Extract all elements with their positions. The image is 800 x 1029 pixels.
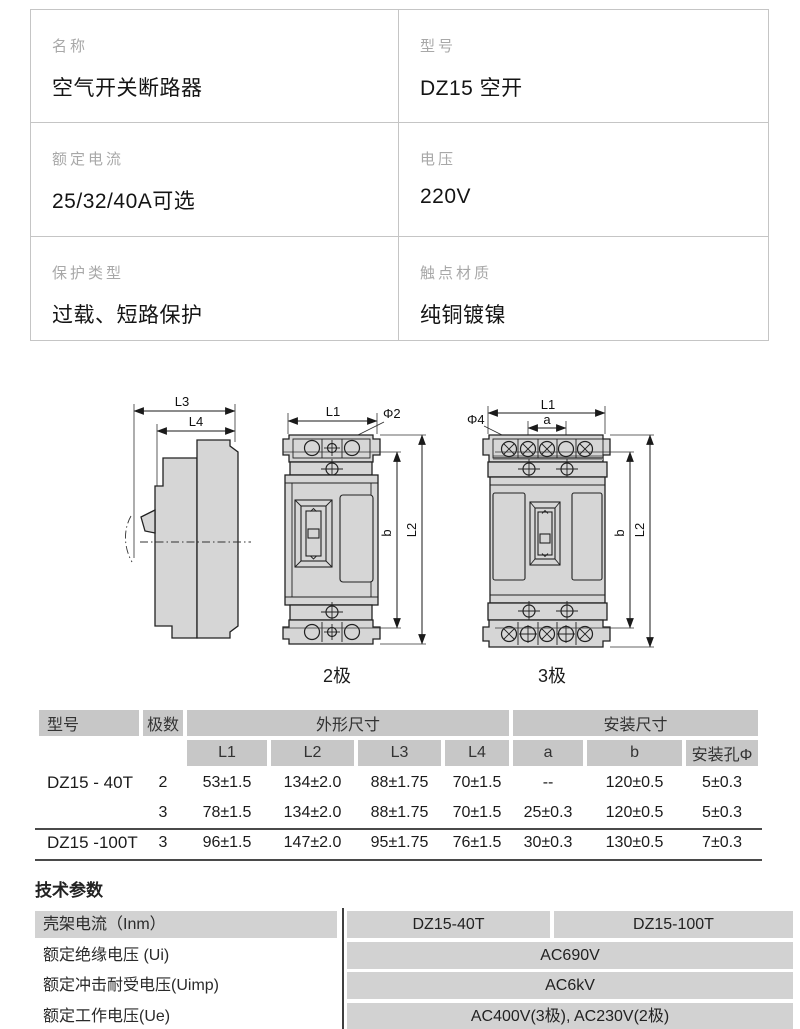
product-spec-page: 名称 空气开关断路器 型号 DZ15 空开 额定电流 25/32/40A可选 电… [0, 0, 800, 1029]
spec-table: 名称 空气开关断路器 型号 DZ15 空开 额定电流 25/32/40A可选 电… [30, 9, 769, 341]
terminal-screw [345, 441, 360, 456]
spec-label: 电压 [420, 148, 768, 169]
spec-cell-rated-current: 额定电流 25/32/40A可选 [31, 123, 399, 237]
col-a: a [513, 740, 583, 766]
toggle-switch [530, 502, 560, 565]
tech-param-row: 额定工作电压(Ue) AC400V(3极), AC230V(2极) [35, 1003, 793, 1029]
dim-label-a: a [543, 412, 551, 427]
toggle-switch [295, 500, 332, 567]
breaker-body-slab [197, 440, 238, 638]
three-pole-drawing: L1 a Φ4 [452, 398, 666, 656]
spec-cell-protection: 保护类型 过载、短路保护 [31, 237, 399, 340]
spec-cell-name: 名称 空气开关断路器 [31, 10, 399, 123]
param-value: AC6kV [347, 972, 793, 999]
tech-param-row: 额定冲击耐受电压(Uimp) AC6kV [35, 972, 793, 999]
right-recess [572, 493, 602, 580]
spec-label: 触点材质 [420, 262, 768, 283]
dim-label-l1: L1 [541, 398, 555, 412]
spec-cell-contact-material: 触点材质 纯铜镀镍 [399, 237, 768, 340]
col-l4: L4 [445, 740, 509, 766]
breaker-handle [141, 510, 155, 533]
left-recess [493, 493, 525, 580]
tech-param-row: 壳架电流（Inm） DZ15-40T DZ15-100T [35, 911, 793, 938]
caption-3-pole: 3极 [512, 662, 592, 688]
param-value: AC690V [347, 942, 793, 969]
dim-label-l4: L4 [189, 414, 203, 429]
spec-value: 过载、短路保护 [52, 299, 398, 329]
spec-cell-voltage: 电压 220V [399, 123, 768, 237]
param-label: 额定工作电压(Ue) [35, 1003, 337, 1029]
spec-label: 型号 [420, 35, 768, 56]
spec-label: 保护类型 [52, 262, 398, 283]
dim-label-l2: L2 [632, 523, 647, 537]
col-b: b [587, 740, 682, 766]
group-outline-dims: 外形尺寸 [187, 710, 509, 736]
group-mounting-dims: 安装尺寸 [513, 710, 758, 736]
breaker-front-slab [155, 458, 197, 638]
col-l1: L1 [187, 740, 267, 766]
col-l3: L3 [358, 740, 441, 766]
col-mount-hole: 安装孔Φ [686, 740, 758, 766]
handle-swing-arc [125, 516, 132, 562]
spec-value: 220V [420, 185, 768, 209]
table-row: 3 78±1.5 134±2.0 88±1.75 70±1.5 25±0.3 1… [39, 800, 758, 826]
table-rule [35, 828, 762, 830]
dim-header-groups: 型号 极数 外形尺寸 安装尺寸 [39, 710, 758, 736]
tech-params-title: 技术参数 [35, 876, 103, 901]
spec-value: DZ15 空开 [420, 72, 768, 102]
col-l2: L2 [271, 740, 354, 766]
caption-2-pole: 2极 [297, 662, 377, 688]
param-value: AC400V(3极), AC230V(2极) [347, 1003, 793, 1029]
tech-param-row: 额定绝缘电压 (Ui) AC690V [35, 942, 793, 969]
dim-label-l3: L3 [175, 394, 189, 409]
terminal-screw [305, 441, 320, 456]
col-poles: 极数 [143, 710, 183, 736]
dim-label-l1: L1 [326, 404, 340, 419]
spec-cell-model: 型号 DZ15 空开 [399, 10, 768, 123]
table-rule [35, 859, 762, 861]
label-recess [340, 495, 373, 582]
dim-label-phi4: Φ4 [467, 412, 485, 427]
spec-value: 空气开关断路器 [52, 72, 398, 102]
param-label: 壳架电流（Inm） [35, 911, 337, 938]
spec-label: 名称 [52, 35, 398, 56]
table-row: DZ15 - 40T 2 53±1.5 134±2.0 88±1.75 70±1… [39, 770, 758, 796]
side-view-drawing: L3 L4 [110, 390, 260, 650]
table-row: DZ15 -100T 3 96±1.5 147±2.0 95±1.75 76±1… [39, 830, 758, 856]
param-value: DZ15-100T [554, 911, 793, 938]
param-value: DZ15-40T [347, 911, 550, 938]
param-label: 额定冲击耐受电压(Uimp) [35, 972, 337, 999]
param-label: 额定绝缘电压 (Ui) [35, 942, 337, 969]
spec-value: 纯铜镀镍 [420, 299, 768, 329]
dim-label-phi2: Φ2 [383, 406, 401, 421]
dimension-table: 型号 极数 外形尺寸 安装尺寸 L1 L2 L3 L4 a b 安装孔Φ DZ1… [35, 706, 762, 860]
dim-label-l2: L2 [404, 523, 419, 537]
dim-label-b: b [612, 529, 627, 536]
spec-value: 25/32/40A可选 [52, 185, 398, 215]
terminal-screws [502, 442, 593, 457]
dim-header-columns: L1 L2 L3 L4 a b 安装孔Φ [39, 740, 758, 766]
spec-label: 额定电流 [52, 148, 398, 169]
col-model: 型号 [39, 710, 139, 736]
dim-label-b: b [379, 529, 394, 536]
two-pole-drawing: L1 Φ2 [272, 398, 432, 656]
